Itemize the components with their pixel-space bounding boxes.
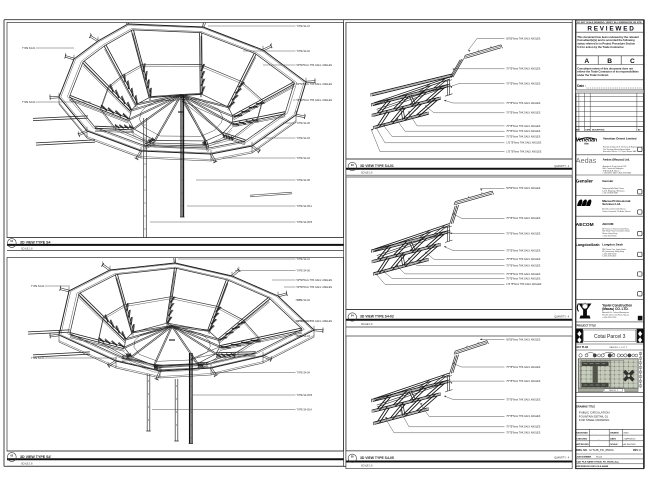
svg-text:SCALE: SCALE [610, 443, 618, 446]
svg-text:Langdon Seah: Langdon Seah [602, 243, 623, 247]
svg-text:SCALE 1:8: SCALE 1:8 [21, 248, 33, 251]
svg-text:the: the [584, 142, 589, 146]
svg-text:t +852 3922 9000: t +852 3922 9000 [602, 234, 616, 237]
svg-text:TYPE S4-06: TYPE S4-06 [297, 270, 311, 273]
svg-text:75*75*6mm THK GALV. ANGLES: 75*75*6mm THK GALV. ANGLES [506, 277, 541, 280]
svg-text:SYSUB_PD_8500A: SYSUB_PD_8500A [589, 448, 614, 452]
svg-text:3D VIEW TYPE S4-05: 3D VIEW TYPE S4-05 [360, 456, 394, 460]
svg-text:L75 75*6mm THK GALV. ANGLES: L75 75*6mm THK GALV. ANGLES [506, 142, 542, 145]
svg-text:TYPE S4-01: TYPE S4-01 [297, 25, 311, 28]
svg-text:PROJECT TITLE: PROJECT TITLE [577, 325, 597, 328]
svg-text:TYPE S4-03: TYPE S4-03 [297, 335, 311, 338]
svg-text:relieve the Trade Contractor o: relieve the Trade Contractor of its resp… [577, 70, 639, 74]
svg-text:Services Ltd.: Services Ltd. [602, 202, 621, 206]
svg-text:L75 75*6mm THK GALV. ANGLES: L75 75*6mm THK GALV. ANGLES [506, 151, 542, 154]
svg-text:under the Trade Contract.: under the Trade Contract. [577, 73, 609, 77]
svg-text:75*75*6mm THK GALV. ANGLES: 75*75*6mm THK GALV. ANGLES [506, 217, 541, 220]
svg-text:KEY PLAN: KEY PLAN [577, 346, 589, 349]
svg-text:Cotai Parcel 3: Cotai Parcel 3 [594, 334, 626, 340]
svg-text:Consultant review of this docu: Consultant review of this document does … [577, 66, 633, 70]
svg-text:DO NOT SCALE DRAWING. VERIFY A: DO NOT SCALE DRAWING. VERIFY ALL DIMENSI… [577, 21, 642, 24]
svg-text:TYPE S4-04: TYPE S4-04 [297, 137, 311, 140]
svg-text:TYPE S4-02: TYPE S4-02 [297, 299, 311, 302]
svg-text:75*75*6mm THK GALV. ANGLES: 75*75*6mm THK GALV. ANGLES [506, 415, 541, 418]
svg-text:5.4 for action by the Trade Co: 5.4 for action by the Trade Contractor. [577, 45, 624, 49]
svg-text:Date :: Date : [577, 84, 586, 88]
svg-text:TYPE S4-05 B: TYPE S4-05 B [297, 221, 313, 224]
svg-text:DATE: DATE [610, 437, 616, 440]
svg-text:50*50*6mm THK GALV. ANGLES: 50*50*6mm THK GALV. ANGLES [297, 99, 333, 102]
svg-text:DATE: DATE [585, 128, 591, 131]
svg-text:3D VIEW TYPE S4-02: 3D VIEW TYPE S4-02 [360, 315, 394, 319]
svg-text:TYPE S4-06: TYPE S4-06 [297, 122, 311, 125]
svg-text:3D VIEW TYPE S4-01: 3D VIEW TYPE S4-01 [360, 164, 394, 168]
svg-text:TYPE S4-02: TYPE S4-02 [31, 285, 45, 288]
svg-text:75*75*6mm THK GALV. ANGLES: 75*75*6mm THK GALV. ANGLES [506, 112, 541, 115]
svg-text:75*75*6mm THK GALV. ANGLES: 75*75*6mm THK GALV. ANGLES [506, 135, 541, 138]
svg-text:AECOM: AECOM [602, 222, 614, 226]
svg-text:This document has been reviewe: This document has been reviewed by the r… [577, 35, 639, 39]
svg-text:A: A [584, 58, 589, 65]
svg-text:50*50*6mm THK GALV. ANGLES: 50*50*6mm THK GALV. ANGLES [506, 338, 541, 341]
svg-text:DWG. NO.: DWG. NO. [576, 450, 587, 452]
svg-text:FOR STEEL DRAWING: FOR STEEL DRAWING [579, 418, 610, 422]
svg-text:(Macau) CO. LTD.: (Macau) CO. LTD. [602, 307, 628, 311]
svg-text:Gensler: Gensler [576, 179, 593, 184]
svg-text:Aedas: Aedas [576, 156, 597, 165]
svg-text:Executive Offices - L2, Taipa,: Executive Offices - L2, Taipa, Macao SAR [603, 150, 637, 153]
svg-text:t +853 2875 2233: t +853 2875 2233 [602, 316, 616, 319]
svg-text:TYPE S4-03: TYPE S4-03 [31, 357, 45, 360]
svg-text:7-APR/2015: 7-APR/2015 [623, 437, 636, 440]
svg-text:SCALE 1:8: SCALE 1:8 [21, 462, 33, 465]
svg-text:50*50*6mm THK GALV. ANGLES: 50*50*6mm THK GALV. ANGLES [297, 279, 333, 282]
svg-text:QUANTITY : 4: QUANTITY : 4 [554, 165, 569, 168]
svg-text:f +852 2576 0416: f +852 2576 0416 [602, 256, 616, 258]
svg-text:SCALE 1:8: SCALE 1:8 [361, 172, 373, 175]
svg-text:LangdonSeah: LangdonSeah [576, 243, 600, 247]
svg-text:Gensler: Gensler [602, 179, 614, 183]
svg-text:status referred to in Project: status referred to in Project Procedure … [577, 42, 635, 46]
svg-text:DESIGNED: DESIGNED [576, 433, 588, 435]
svg-text:75*75*6mm THK GALV. ANGLES: 75*75*6mm THK GALV. ANGLES [506, 102, 541, 105]
svg-text:75*75*6mm THK GALV. ANGLES: 75*75*6mm THK GALV. ANGLES [506, 232, 541, 235]
svg-text:3D VIEW TYPE S4: 3D VIEW TYPE S4 [20, 241, 51, 245]
svg-text:75*75*6mm THK GALV. ANGLES: 75*75*6mm THK GALV. ANGLES [506, 83, 541, 86]
svg-text:Consultant(s)(s) and is accord: Consultant(s)(s) and is accorded the fol… [577, 38, 635, 42]
svg-text:TYPE S4-05 B: TYPE S4-05 B [297, 394, 313, 397]
svg-text:75*75*6mm THK GALV. ANGLES: 75*75*6mm THK GALV. ANGLES [506, 380, 541, 383]
svg-text:t +853 2872 3382 f +853 2872: t +853 2872 3382 f +853 2872 3380 [603, 172, 632, 175]
svg-text:75*75*6mm THK GALV. ANGLES: 75*75*6mm THK GALV. ANGLES [506, 426, 541, 429]
svg-text:REV: A: REV: A [633, 449, 641, 452]
svg-text:50*50*6mm THK GALV. ANGLES: 50*50*6mm THK GALV. ANGLES [297, 320, 333, 323]
svg-text:75*75*6mm THK GALV. ANGLES: 75*75*6mm THK GALV. ANGLES [506, 68, 541, 71]
svg-text:TYPE S4-01: TYPE S4-01 [297, 258, 311, 261]
svg-text:JOB NUMBER: JOB NUMBER [576, 457, 591, 459]
svg-text:50*50*6mm THK GALV. ANGLES: 50*50*6mm THK GALV. ANGLES [506, 37, 541, 40]
svg-text:TYPE S4-05: TYPE S4-05 [297, 179, 311, 182]
svg-text:75*75*6mm THK GALV. ANGLES: 75*75*6mm THK GALV. ANGLES [506, 273, 541, 276]
svg-text:50*50*6mm THK GALV. ANGLES: 50*50*6mm THK GALV. ANGLES [297, 64, 333, 67]
svg-text:SCALE 1:8: SCALE 1:8 [361, 323, 373, 326]
svg-text:CAD FILE NAME SYSUB_PD_8500A: CAD FILE NAME SYSUB_PD_8500A.dwg [576, 460, 619, 463]
svg-text:50*50*6mm THK GALV. ANGLES: 50*50*6mm THK GALV. ANGLES [297, 83, 333, 86]
svg-text:PARCEL 1, LOT 2: PARCEL 1, LOT 2 [610, 346, 628, 349]
svg-text:GMO: GMO [623, 433, 629, 435]
svg-text:75*75*6mm THK GALV. ANGLES: 75*75*6mm THK GALV. ANGLES [506, 265, 541, 268]
svg-text:SCALE 1:8: SCALE 1:8 [361, 465, 373, 468]
svg-text:B: B [607, 58, 612, 65]
svg-text:AS SHOWN: AS SHOWN [623, 443, 635, 446]
svg-text:75*75*6mm THK GALV. ANGLES: 75*75*6mm THK GALV. ANGLES [506, 125, 541, 128]
svg-text:DRAWN: DRAWN [610, 432, 619, 435]
svg-text:31520: 31520 [596, 457, 603, 459]
svg-text:L75 75*6mm THK GALV. ANGLES: L75 75*6mm THK GALV. ANGLES [506, 283, 542, 286]
svg-text:TYPE S4-05 A: TYPE S4-05 A [297, 409, 313, 412]
svg-text:50*50*6mm THK GALV. ANGLES: 50*50*6mm THK GALV. ANGLES [506, 187, 541, 190]
svg-text:CHECKED: CHECKED [576, 438, 587, 440]
svg-text:PARCEL 3: PARCEL 3 [609, 389, 618, 392]
svg-text:Venetian Orient Limited: Venetian Orient Limited [603, 136, 637, 140]
svg-text:Centro Comercial, 13 Andar, Ma: Centro Comercial, 13 Andar, Macau [602, 210, 630, 213]
svg-text:TYPE S4-02: TYPE S4-02 [297, 50, 311, 53]
svg-text:3D VIEW TYPE S4': 3D VIEW TYPE S4' [20, 455, 52, 459]
svg-text:TYPE S4-03: TYPE S4-03 [297, 157, 311, 160]
svg-text:t +81 03 6406 6330: t +81 03 6406 6330 [602, 192, 618, 195]
svg-text:TYPE S4-04: TYPE S4-04 [297, 372, 311, 375]
svg-text:Aedas (Macau) Ltd.: Aedas (Macau) Ltd. [603, 157, 631, 161]
svg-text:75*75*6mm THK GALV. ANGLES: 75*75*6mm THK GALV. ANGLES [506, 249, 541, 252]
svg-text:75*75*6mm THK GALV. ANGLES: 75*75*6mm THK GALV. ANGLES [506, 366, 541, 369]
svg-text:DRAWING TITLE: DRAWING TITLE [576, 406, 595, 409]
svg-text:QUANTITY : 4: QUANTITY : 4 [554, 315, 569, 318]
svg-text:TYPE S4-01: TYPE S4-01 [22, 47, 36, 50]
svg-text:75*75*6mm THK GALV. ANGLES: 75*75*6mm THK GALV. ANGLES [506, 258, 541, 261]
svg-text:TYPE S4-02: TYPE S4-02 [22, 101, 36, 104]
svg-text:APPROVED: APPROVED [576, 443, 589, 446]
svg-text:C: C [630, 58, 635, 65]
svg-text:QUANTITY : 4: QUANTITY : 4 [554, 457, 569, 460]
svg-text:R E V I E W E D: R E V I E W E D [587, 25, 634, 32]
svg-text:75*75*6mm THK GALV. ANGLES: 75*75*6mm THK GALV. ANGLES [506, 398, 541, 401]
svg-text:50*50*6mm THK GALV. ANGLES: 50*50*6mm THK GALV. ANGLES [297, 286, 333, 289]
svg-text:REFERENCE DWG FILE NAME: REFERENCE DWG FILE NAME [576, 465, 608, 468]
svg-text:TYPE S4-05 A: TYPE S4-05 A [297, 205, 313, 208]
svg-text:AECOM: AECOM [576, 222, 594, 228]
svg-text:75*75*6mm THK GALV. ANGLES: 75*75*6mm THK GALV. ANGLES [506, 432, 541, 435]
svg-text:75*75*6mm THK GALV. ANGLES: 75*75*6mm THK GALV. ANGLES [506, 130, 541, 133]
